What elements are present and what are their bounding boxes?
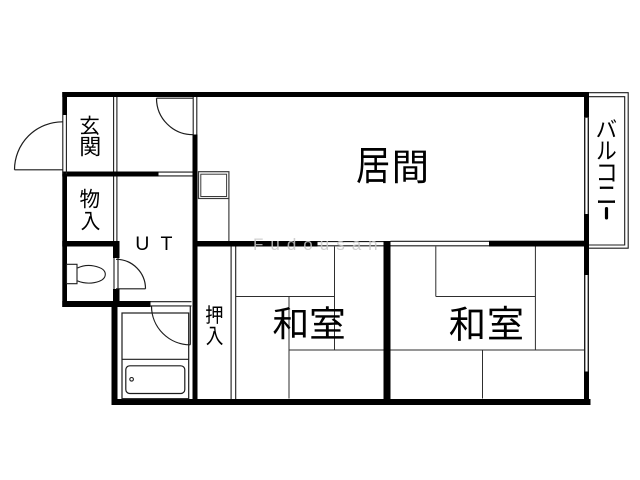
svg-text:Fudousan: Fudousan [253, 235, 385, 254]
svg-text:U T: U T [135, 233, 175, 255]
